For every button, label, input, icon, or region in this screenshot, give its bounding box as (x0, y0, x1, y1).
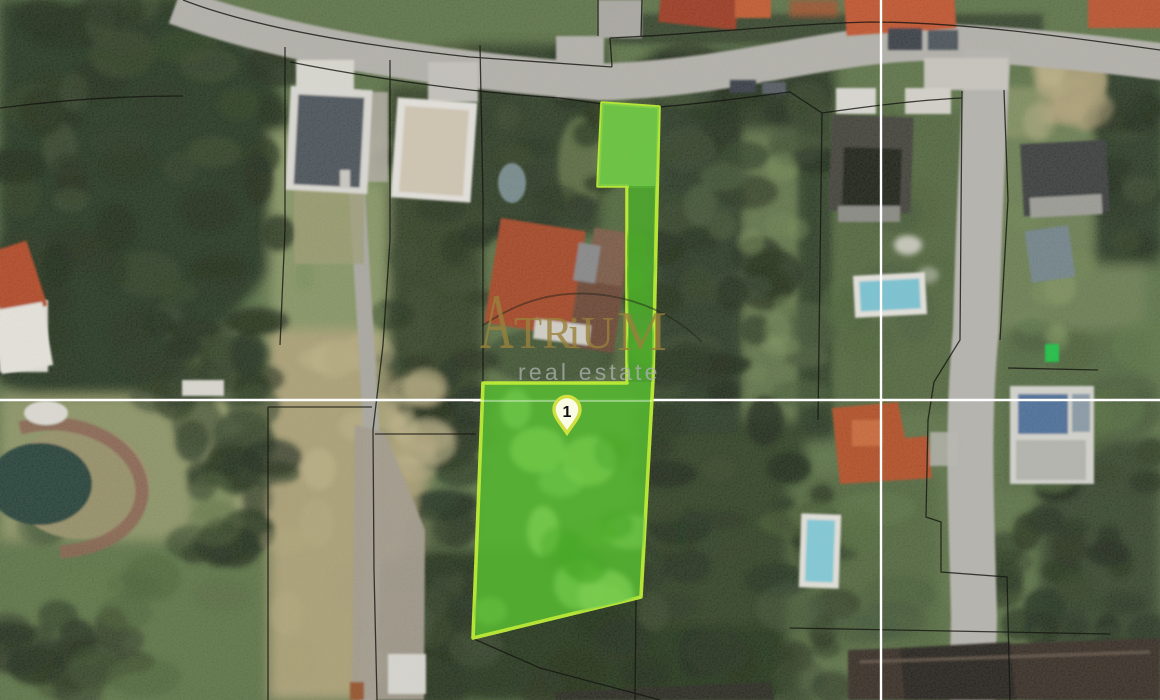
svg-text:U: U (581, 307, 614, 358)
svg-text:M: M (617, 301, 667, 363)
svg-text:real estate: real estate (518, 359, 661, 385)
svg-text:TR: TR (514, 307, 573, 358)
svg-text:i: i (568, 307, 581, 358)
svg-text:1: 1 (563, 404, 572, 421)
svg-text:A: A (480, 279, 514, 365)
